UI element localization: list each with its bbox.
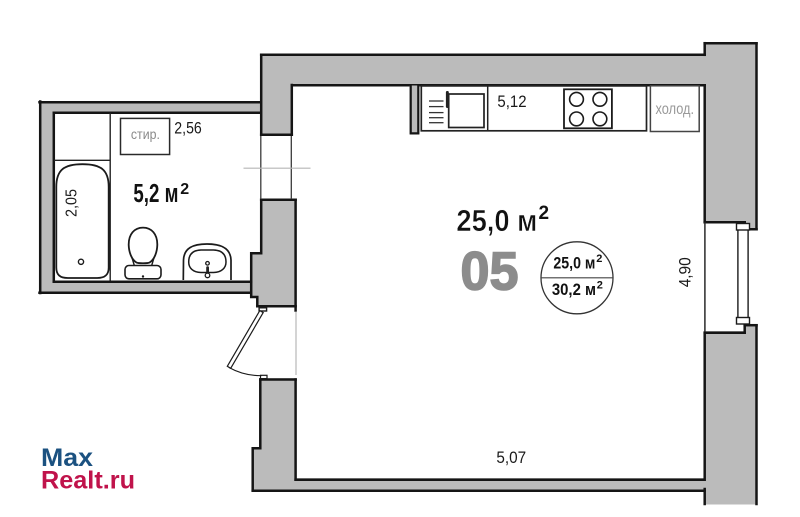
svg-text:стир.: стир. (131, 126, 160, 142)
svg-text:05: 05 (461, 241, 519, 301)
svg-text:2: 2 (596, 253, 602, 265)
svg-text:25,0 м: 25,0 м (553, 255, 595, 273)
svg-text:2: 2 (180, 181, 189, 198)
svg-text:5,2 м: 5,2 м (133, 180, 178, 208)
svg-text:5,07: 5,07 (496, 448, 526, 467)
svg-text:5,12: 5,12 (497, 92, 526, 111)
svg-text:2: 2 (597, 280, 603, 292)
svg-text:25,0 м: 25,0 м (456, 204, 537, 238)
svg-text:2,05: 2,05 (64, 189, 81, 217)
svg-text:4,90: 4,90 (675, 257, 694, 287)
svg-text:2: 2 (539, 203, 550, 224)
svg-text:холод.: холод. (656, 101, 695, 118)
svg-text:Realt.ru: Realt.ru (41, 467, 135, 495)
svg-text:30,2 м: 30,2 м (552, 281, 596, 299)
svg-text:2,56: 2,56 (174, 120, 202, 138)
